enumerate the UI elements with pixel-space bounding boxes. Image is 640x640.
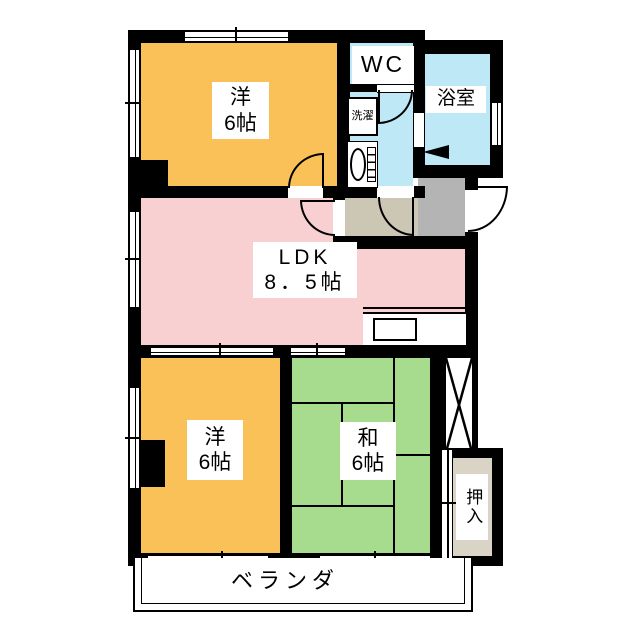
room-label-ldk: LDK 8．5帖 <box>253 242 357 298</box>
wall-bath-bottom <box>413 165 503 178</box>
window-line <box>497 103 499 145</box>
door-opening <box>414 113 424 147</box>
entry-floor <box>418 178 465 236</box>
window-tick <box>235 27 237 42</box>
room-size: 6帖 <box>352 451 385 476</box>
room-name: WC <box>361 51 405 79</box>
door-tick <box>436 502 456 504</box>
counter-edge <box>363 307 466 309</box>
room-label-bathroom: 浴室 <box>426 86 486 113</box>
room-label-wc: WC <box>352 46 414 84</box>
room-name: 押入 <box>462 488 482 526</box>
room-name: 洋 <box>230 85 251 110</box>
room-label-veranda: ベランダ <box>190 567 380 595</box>
room-label-japanese: 和 6帖 <box>340 422 396 480</box>
toilet-bowl <box>350 148 366 181</box>
room-name: ベランダ <box>231 568 339 594</box>
floorplan-canvas: 洋 6帖 WC 浴室 洗濯 LDK 8．5帖 洋 6帖 和 6帖 押入 ベランダ <box>0 0 640 640</box>
room-size: 6帖 <box>199 450 232 475</box>
wall-wc-divider <box>350 84 377 92</box>
shaft-x-icon <box>446 358 472 452</box>
room-name: 和 <box>358 426 379 451</box>
window-tick <box>125 437 139 439</box>
tatami-line <box>292 505 395 507</box>
toilet-tank <box>367 147 376 182</box>
room-size: 6帖 <box>224 111 257 136</box>
kitchen-sink <box>373 318 417 341</box>
fixture-name: 洗濯 <box>352 110 374 123</box>
wall-right-mid <box>465 249 478 358</box>
wall-room-divider <box>280 345 292 566</box>
laundry-box: 洗濯 <box>347 97 378 136</box>
sliding-door <box>151 347 273 356</box>
wall-notch-top <box>141 160 168 186</box>
room-label-closet: 押入 <box>456 474 488 540</box>
sliding-door <box>291 347 345 356</box>
room-size: 8．5帖 <box>264 270 345 295</box>
bathroom-door-icon <box>423 145 449 159</box>
tatami-line <box>292 402 395 404</box>
sliding-door-line <box>291 352 345 354</box>
window <box>491 103 502 145</box>
sliding-door-line <box>447 450 449 558</box>
room-label-western-bottom: 洋 6帖 <box>187 420 243 480</box>
room-label-western-top: 洋 6帖 <box>212 82 269 139</box>
room-name: 洋 <box>205 425 226 450</box>
window-tick <box>125 258 139 260</box>
room-name: LDK <box>279 245 332 270</box>
window-tick <box>125 102 139 104</box>
tatami-line <box>394 454 430 456</box>
door-arc-entrance <box>468 186 508 232</box>
door-tick <box>219 343 221 358</box>
door-tick <box>316 343 318 358</box>
room-name: 浴室 <box>437 88 475 111</box>
closet-sliding-door <box>441 450 453 558</box>
sliding-door-line <box>151 352 273 354</box>
